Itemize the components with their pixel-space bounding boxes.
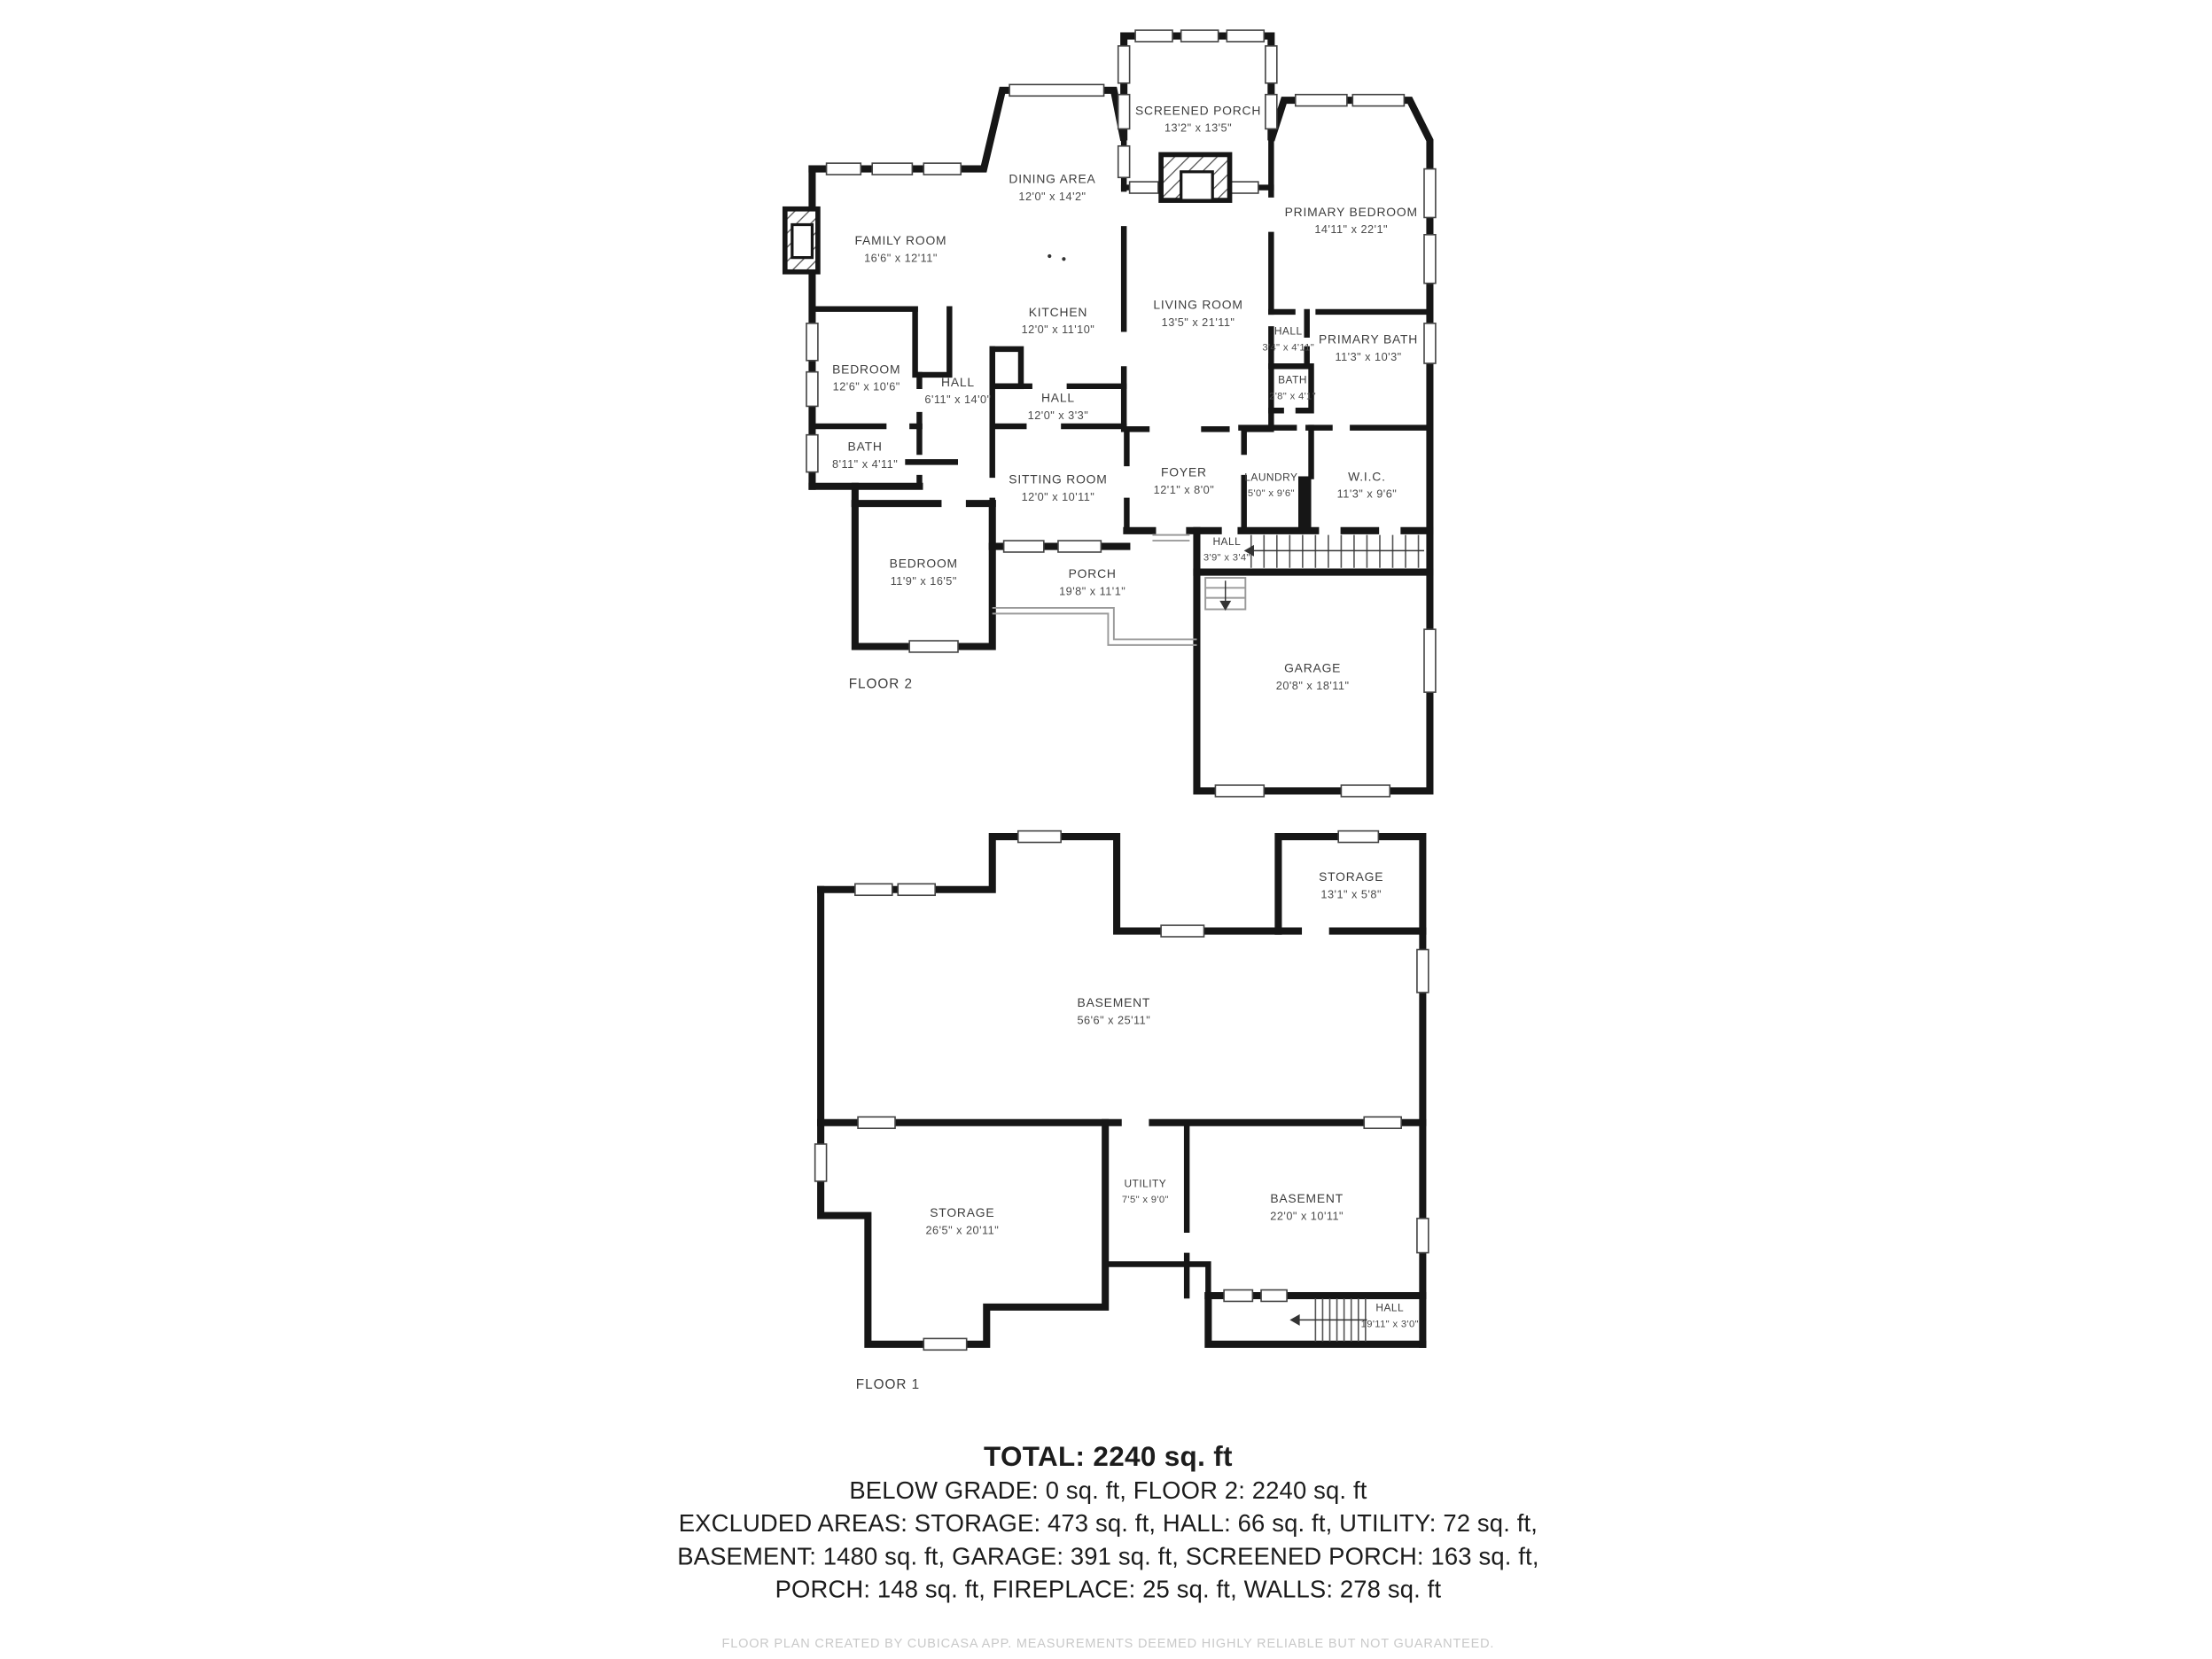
- window: [1118, 146, 1130, 177]
- room-label-primary-bedroom: PRIMARY BEDROOM: [1285, 205, 1418, 219]
- window: [923, 163, 961, 175]
- room-label-hall-1: HALL: [941, 375, 975, 389]
- window: [1266, 95, 1277, 129]
- room-dims-bedroom-1: 12'6" x 10'6": [833, 380, 900, 393]
- room-dims-wic: 11'3" x 9'6": [1337, 487, 1398, 501]
- window: [1215, 785, 1264, 797]
- room-label-basement-2: BASEMENT: [1270, 1191, 1344, 1205]
- room-label-sitting-room: SITTING ROOM: [1009, 472, 1107, 487]
- wall: [1187, 1264, 1208, 1295]
- room-dims-basement-2: 22'0" x 10'11": [1270, 1209, 1344, 1222]
- summary-line-1: BELOW GRADE: 0 sq. ft, FLOOR 2: 2240 sq.…: [849, 1476, 1367, 1504]
- window: [1364, 1117, 1401, 1128]
- room-label-hall-2: HALL: [1041, 391, 1075, 405]
- footer-credit: FLOOR PLAN CREATED BY CUBICASA APP. MEAS…: [722, 1637, 1495, 1651]
- summary-line-2: EXCLUDED AREAS: STORAGE: 473 sq. ft, HAL…: [679, 1509, 1538, 1537]
- window: [806, 323, 818, 361]
- window: [1417, 950, 1429, 993]
- window: [855, 884, 892, 895]
- room-dims-porch: 19'8" x 11'1": [1059, 584, 1125, 597]
- window: [1058, 541, 1101, 552]
- room-label-laundry: LAUNDRY: [1244, 471, 1297, 483]
- floor-plan-svg: SCREENED PORCH 13'2" x 13'5" DINING AREA…: [0, 0, 2212, 1659]
- room-dims-primary-bedroom: 14'11" x 22'1": [1314, 222, 1388, 236]
- room-label-wic: W.I.C.: [1348, 469, 1386, 483]
- room-label-screened-porch: SCREENED PORCH: [1135, 103, 1261, 117]
- room-dims-hall-3: 3'4" x 4'11": [1262, 342, 1314, 353]
- room-label-hall-4: HALL: [1212, 535, 1241, 548]
- room-dims-foyer: 12'1" x 8'0": [1154, 483, 1215, 496]
- room-dims-storage-upper: 13'1" x 5'8": [1320, 887, 1382, 900]
- window: [1227, 30, 1264, 42]
- room-dims-hall-1: 6'11" x 14'0": [924, 393, 991, 406]
- room-dims-dining-area: 12'0" x 14'2": [1018, 190, 1086, 203]
- window: [1261, 1290, 1287, 1302]
- window: [1338, 831, 1378, 843]
- room-dims-living-room: 13'5" x 21'11": [1162, 315, 1235, 329]
- window: [1424, 169, 1436, 218]
- window: [872, 163, 912, 175]
- floor1-stairs: [1289, 1298, 1367, 1341]
- window: [1135, 30, 1172, 42]
- room-label-bedroom-1: BEDROOM: [832, 362, 900, 376]
- window: [909, 641, 958, 652]
- room-dims-garage: 20'8" x 18'11": [1276, 679, 1350, 692]
- room-label-garage: GARAGE: [1284, 661, 1341, 675]
- room-dims-laundry: 5'0" x 9'6": [1248, 488, 1295, 499]
- window: [1417, 1219, 1429, 1253]
- room-label-kitchen: KITCHEN: [1029, 305, 1087, 319]
- window: [1004, 541, 1044, 552]
- window: [1424, 323, 1436, 363]
- plan-dot: [1048, 254, 1051, 258]
- room-label-storage-lower: STORAGE: [930, 1205, 994, 1219]
- pantry-closet: [993, 349, 1021, 386]
- family-room-fireplace-icon: [785, 209, 818, 272]
- floor1-windows: [815, 831, 1429, 1351]
- window: [1266, 46, 1277, 83]
- room-dims-screened-porch: 13'2" x 13'5": [1164, 121, 1232, 135]
- room-dims-kitchen: 12'0" x 11'10": [1022, 323, 1095, 336]
- floor2-entry-steps: [1205, 578, 1245, 611]
- room-label-storage-upper: STORAGE: [1319, 869, 1383, 884]
- room-label-primary-bath: PRIMARY BATH: [1319, 331, 1418, 346]
- window: [1118, 95, 1130, 129]
- wall: [915, 309, 950, 375]
- window: [815, 1144, 827, 1181]
- room-dims-primary-bath: 11'3" x 10'3": [1335, 350, 1401, 363]
- stairs-arrow-icon: [1289, 1314, 1299, 1326]
- room-dims-sitting-room: 12'0" x 10'11": [1022, 490, 1095, 503]
- summary-line-4: PORCH: 148 sq. ft, FIREPLACE: 25 sq. ft,…: [775, 1575, 1442, 1602]
- summary-block: TOTAL: 2240 sq. ft BELOW GRADE: 0 sq. ft…: [677, 1441, 1538, 1651]
- floor2-stairs: [1244, 535, 1424, 568]
- window: [1352, 95, 1404, 106]
- room-label-family-room: FAMILY ROOM: [855, 233, 947, 247]
- window: [1118, 46, 1130, 83]
- window: [1296, 95, 1347, 106]
- window: [1341, 785, 1390, 797]
- room-label-utility: UTILITY: [1124, 1177, 1166, 1189]
- room-dims-family-room: 16'6" x 12'11": [864, 251, 938, 264]
- window: [1181, 30, 1219, 42]
- window: [1130, 182, 1158, 193]
- room-label-hall-3: HALL: [1274, 325, 1303, 338]
- wall: [1278, 837, 1422, 931]
- window: [1224, 1290, 1252, 1302]
- room-dims-hall-4: 3'9" x 3'4": [1203, 553, 1250, 564]
- room-label-living-room: LIVING ROOM: [1153, 298, 1242, 312]
- floor1-walls: [821, 837, 1422, 1344]
- floor-plan-page: SCREENED PORCH 13'2" x 13'5" DINING AREA…: [0, 0, 2212, 1659]
- room-label-basement-main: BASEMENT: [1078, 995, 1151, 1009]
- room-dims-bath-small: 2'8" x 4'1": [1269, 391, 1316, 401]
- chimney-block: [1298, 476, 1312, 530]
- room-label-porch: PORCH: [1069, 566, 1117, 580]
- window: [806, 435, 818, 472]
- window: [1230, 182, 1258, 193]
- window: [1009, 84, 1103, 96]
- floor1-tag: FLOOR 1: [856, 1377, 920, 1392]
- room-label-hall-basement: HALL: [1375, 1302, 1404, 1314]
- summary-line-3: BASEMENT: 1480 sq. ft, GARAGE: 391 sq. f…: [677, 1542, 1538, 1569]
- summary-total: TOTAL: 2240 sq. ft: [984, 1441, 1233, 1472]
- floor1-plan: STORAGE 13'1" x 5'8" BASEMENT 56'6" x 25…: [815, 831, 1429, 1392]
- floor2-tag: FLOOR 2: [849, 676, 913, 691]
- floor2-plan: SCREENED PORCH 13'2" x 13'5" DINING AREA…: [785, 30, 1436, 797]
- room-dims-hall-basement: 19'11" x 3'0": [1361, 1319, 1419, 1329]
- window: [923, 1338, 966, 1350]
- window: [1018, 831, 1061, 843]
- room-dims-bath: 8'11" x 4'11": [832, 457, 898, 471]
- window: [898, 884, 935, 895]
- room-dims-utility: 7'5" x 9'0": [1122, 1195, 1169, 1205]
- room-dims-basement-main: 56'6" x 25'11": [1077, 1013, 1150, 1026]
- room-dims-storage-lower: 26'5" x 20'11": [925, 1224, 999, 1237]
- window: [1161, 925, 1203, 937]
- screened-porch-fireplace-icon: [1161, 154, 1229, 200]
- room-label-dining-area: DINING AREA: [1009, 172, 1095, 186]
- window: [806, 372, 818, 407]
- room-dims-hall-2: 12'0" x 3'3": [1028, 409, 1089, 422]
- window: [1424, 235, 1436, 284]
- room-label-bath-small: BATH: [1278, 374, 1307, 386]
- room-label-bedroom-2: BEDROOM: [890, 557, 958, 571]
- window: [827, 163, 861, 175]
- wall: [1271, 312, 1306, 366]
- floor1-labels: STORAGE 13'1" x 5'8" BASEMENT 56'6" x 25…: [856, 869, 1419, 1392]
- window: [858, 1117, 895, 1128]
- window: [1424, 629, 1436, 692]
- room-label-bath: BATH: [848, 439, 883, 453]
- plan-dot: [1062, 257, 1065, 261]
- room-label-foyer: FOYER: [1161, 464, 1207, 479]
- room-dims-bedroom-2: 11'9" x 16'5": [891, 574, 957, 588]
